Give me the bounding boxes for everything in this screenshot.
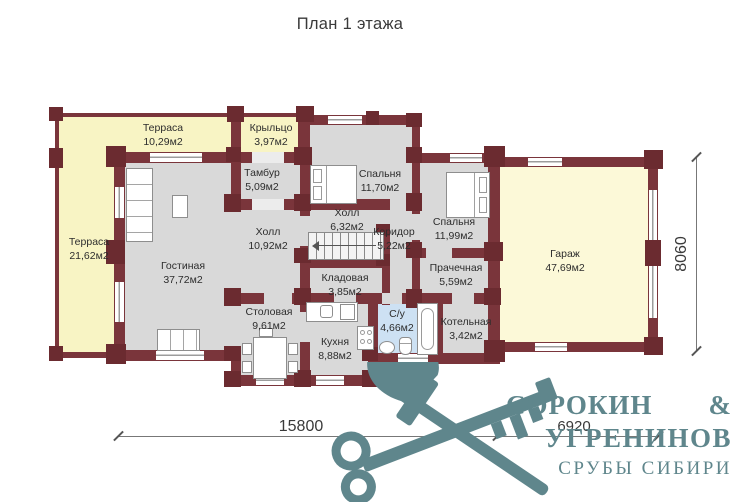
- log-post: [49, 346, 63, 361]
- burner-icon: [360, 330, 365, 335]
- floor-plan-page: План 1 этажа: [0, 0, 753, 502]
- room-name: Тамбур: [226, 167, 298, 181]
- toilet: [399, 337, 412, 355]
- room-name: Крыльцо: [238, 122, 304, 136]
- burner-icon: [367, 330, 372, 335]
- page-title: План 1 этажа: [250, 15, 450, 34]
- room-name: Прачечная: [416, 262, 496, 276]
- room-name: Терраса: [118, 122, 208, 136]
- window: [649, 266, 657, 318]
- log-post: [484, 146, 505, 167]
- logo-ampersand: &: [709, 390, 733, 421]
- wall: [55, 113, 305, 117]
- logo-name-line1: СОРОКИН &: [506, 390, 732, 421]
- log-post: [296, 106, 314, 122]
- room-area: 4,66м2: [374, 322, 420, 336]
- room-area: 5,59м2: [416, 276, 496, 290]
- room-area: 47,69м2: [525, 262, 605, 276]
- door-opening: [382, 293, 402, 304]
- log-post: [106, 344, 126, 364]
- log-post: [484, 288, 501, 305]
- room-label-living: Гостиная 37,72м2: [143, 260, 223, 287]
- log-post: [227, 106, 244, 122]
- room-area: 5,09м2: [226, 181, 298, 195]
- log-post: [406, 113, 422, 127]
- log-post: [294, 147, 312, 165]
- room-label-bathroom: С/у 4,66м2: [374, 308, 420, 335]
- room-name: Холл: [230, 226, 306, 240]
- logo-name-line2: УГРЕНИНОВ: [506, 423, 732, 454]
- log-post: [644, 150, 663, 169]
- kitchen-appliance: [340, 304, 355, 320]
- window: [450, 154, 482, 162]
- pillow: [479, 177, 487, 193]
- room-name: Спальня: [418, 216, 490, 230]
- log-post: [224, 288, 241, 306]
- room-label-dining: Столовая 9,61м2: [231, 306, 307, 333]
- room-label-tambur: Тамбур 5,09м2: [226, 167, 298, 194]
- sofa: [126, 168, 153, 242]
- room-area: 3,42м2: [434, 330, 498, 344]
- room-name: Гостиная: [143, 260, 223, 274]
- room-label-kitchen: Кухня 8,88м2: [303, 336, 367, 363]
- log-post: [366, 111, 379, 125]
- sofa: [157, 329, 200, 351]
- log-post: [406, 147, 422, 163]
- log-post: [224, 194, 241, 212]
- door-opening: [252, 152, 284, 163]
- log-post: [224, 346, 241, 361]
- stairs-arrow-head-icon: [312, 241, 319, 251]
- window: [156, 351, 204, 360]
- window: [649, 190, 657, 244]
- dining-table: [253, 337, 287, 379]
- bathtub-inner: [421, 308, 434, 350]
- wall: [497, 342, 658, 352]
- room-label-bedroom1: Спальня 11,70м2: [342, 168, 418, 195]
- room-label-storage: Кладовая 3,85м2: [306, 272, 384, 299]
- room-area: 3,97м2: [238, 136, 304, 150]
- room-area: 21,62м2: [58, 250, 120, 264]
- log-post: [484, 242, 503, 261]
- room-area: 9,61м2: [231, 320, 307, 334]
- room-area: 11,99м2: [418, 230, 490, 244]
- room-name: Спальня: [342, 168, 418, 182]
- room-label-laundry: Прачечная 5,59м2: [416, 262, 496, 289]
- log-post: [49, 107, 63, 121]
- log-post: [645, 240, 661, 266]
- room-name: Кладовая: [306, 272, 384, 286]
- room-label-terrace-left: Терраса 21,62м2: [58, 236, 120, 263]
- room-label-terrace-top: Терраса 10,29м2: [118, 122, 208, 149]
- room-label-boiler: Котельная 3,42м2: [434, 316, 498, 343]
- room-name: Терраса: [58, 236, 120, 250]
- room-name: Гараж: [525, 248, 605, 262]
- window: [328, 116, 362, 124]
- chair: [288, 361, 298, 373]
- dimension-garage-depth: 8060: [673, 224, 691, 284]
- dimension-line-depth: [696, 157, 697, 351]
- window: [115, 282, 124, 322]
- door-opening: [452, 293, 474, 304]
- bed: [446, 172, 490, 218]
- room-area: 37,72м2: [143, 274, 223, 288]
- room-area: 11,70м2: [342, 182, 418, 196]
- window: [115, 187, 124, 218]
- log-post: [224, 371, 241, 387]
- sink: [379, 341, 395, 354]
- burner-icon: [367, 339, 372, 344]
- pillow: [313, 169, 322, 183]
- log-post: [49, 148, 63, 168]
- window: [535, 343, 567, 351]
- blanket-line: [474, 173, 475, 217]
- room-name: Кухня: [303, 336, 367, 350]
- coffee-table: [172, 195, 188, 218]
- room-name: С/у: [374, 308, 420, 322]
- log-post: [644, 337, 663, 355]
- room-area: 10,92м2: [230, 240, 306, 254]
- chair: [288, 343, 298, 355]
- blanket-line: [326, 166, 327, 203]
- kitchen-sink: [320, 305, 333, 318]
- room-area: 10,29м2: [118, 136, 208, 150]
- logo-name-top: СОРОКИН: [506, 390, 652, 421]
- window: [528, 158, 562, 166]
- room-label-garage: Гараж 47,69м2: [525, 248, 605, 275]
- log-post: [484, 340, 505, 362]
- pillow: [313, 186, 322, 200]
- logo-tagline: СРУБЫ СИБИРИ: [506, 458, 732, 480]
- room-label-porch: Крыльцо 3,97м2: [238, 122, 304, 149]
- wall: [497, 157, 658, 167]
- room-name: Столовая: [231, 306, 307, 320]
- chair: [242, 361, 252, 373]
- toilet-tank-line: [400, 343, 411, 344]
- pillow: [479, 197, 487, 213]
- room-name: Котельная: [434, 316, 498, 330]
- log-post: [294, 194, 311, 211]
- door-opening: [264, 293, 292, 304]
- chair: [242, 343, 252, 355]
- room-name: Холл: [312, 207, 382, 221]
- door-opening: [252, 199, 284, 210]
- window: [150, 153, 202, 162]
- room-area: 3,85м2: [306, 286, 384, 300]
- room-label-hall-big: Холл 10,92м2: [230, 226, 306, 253]
- room-label-bedroom2: Спальня 11,99м2: [418, 216, 490, 243]
- log-post: [406, 193, 422, 211]
